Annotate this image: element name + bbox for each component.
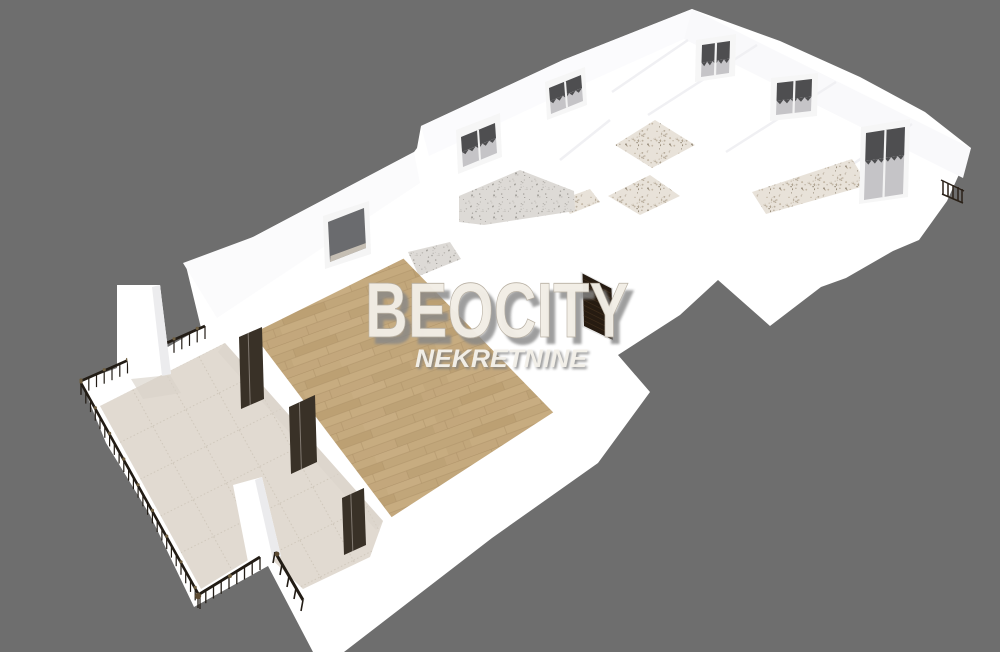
svg-text:NEKRETNINE: NEKRETNINE bbox=[415, 345, 588, 373]
svg-text:BEOCITY: BEOCITY bbox=[365, 266, 629, 354]
